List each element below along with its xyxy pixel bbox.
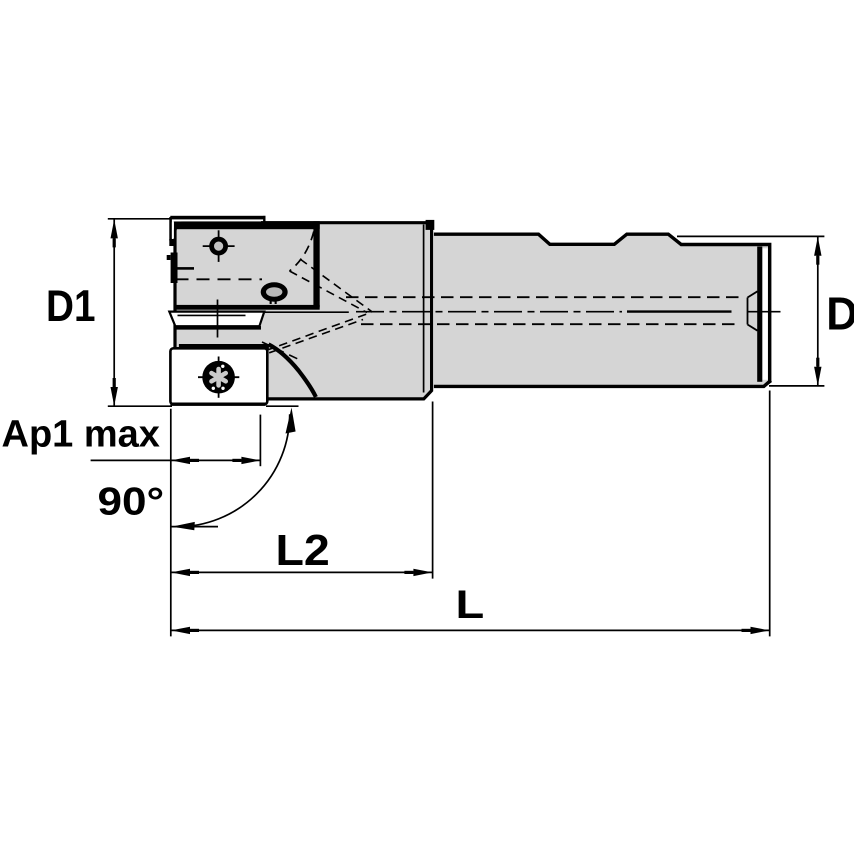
svg-text:L2: L2 [276,525,330,574]
svg-text:D1: D1 [46,281,95,331]
svg-text:90°: 90° [98,479,165,523]
svg-text:Ap1 max: Ap1 max [2,413,160,455]
svg-text:D: D [826,288,854,340]
svg-text:L: L [456,584,485,628]
